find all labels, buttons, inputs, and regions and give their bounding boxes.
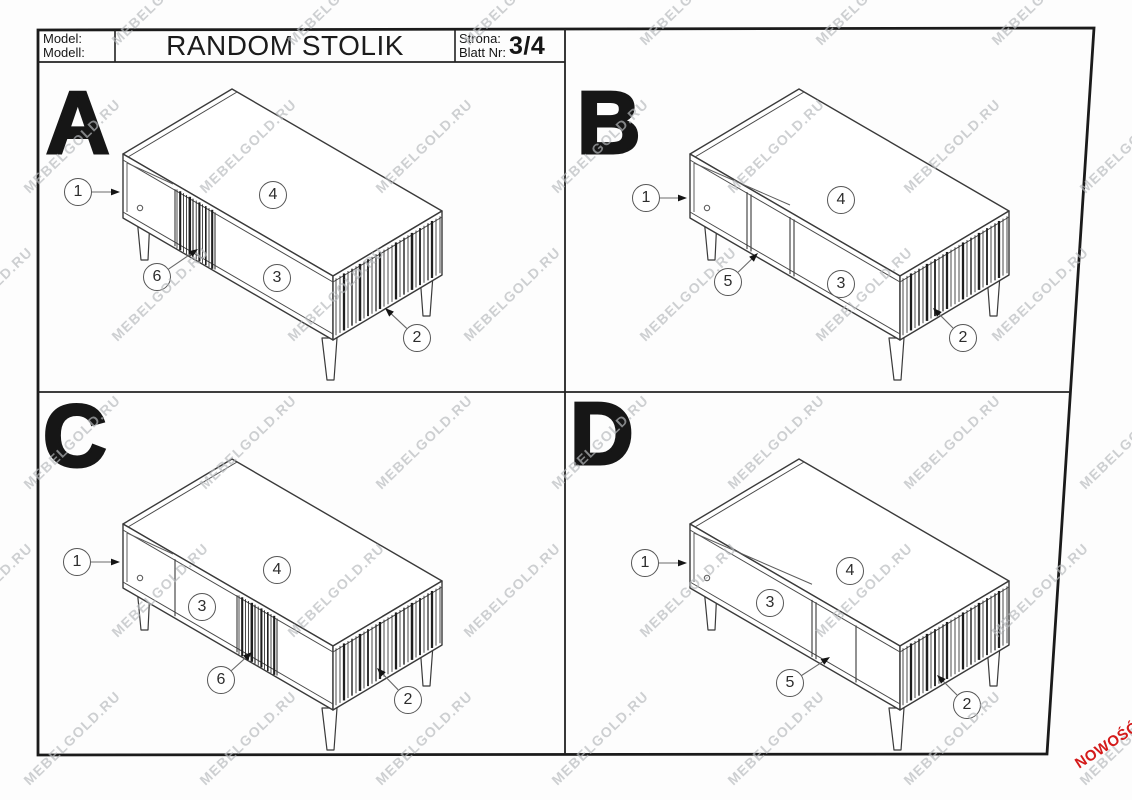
watermark-text: MEBELGOLD.RU — [460, 540, 563, 640]
watermark-text: MEBELGOLD.RU — [548, 688, 651, 788]
leader-arrow — [933, 308, 942, 317]
watermark-text: MEBELGOLD.RU — [1076, 392, 1132, 492]
watermark-text: MEBELGOLD.RU — [988, 0, 1091, 48]
watermark-text: MEBELGOLD.RU — [196, 96, 299, 196]
callout-part-5: 5 — [714, 268, 742, 296]
callout-part-6: 6 — [207, 666, 235, 694]
leader-arrow — [243, 652, 252, 661]
watermark-text: MEBELGOLD.RU — [1076, 96, 1132, 196]
callout-part-3: 3 — [827, 270, 855, 298]
page-label-pl: Strona: — [459, 32, 506, 46]
watermark-text: MEBELGOLD.RU — [724, 688, 827, 788]
variant-letter-b: B — [577, 79, 641, 167]
callout-part-3: 3 — [188, 593, 216, 621]
page-label-de: Blatt Nr: — [459, 46, 506, 60]
watermark-text: MEBELGOLD.RU — [196, 688, 299, 788]
watermark-text: MEBELGOLD.RU — [108, 244, 211, 344]
watermark-text: MEBELGOLD.RU — [0, 244, 36, 344]
watermark-text: MEBELGOLD.RU — [636, 0, 739, 48]
watermark-text: MEBELGOLD.RU — [196, 392, 299, 492]
watermark-text: MEBELGOLD.RU — [900, 392, 1003, 492]
watermark-text: MEBELGOLD.RU — [724, 392, 827, 492]
watermark-text: MEBELGOLD.RU — [372, 96, 475, 196]
leader-arrow — [111, 559, 120, 566]
watermark-text: MEBELGOLD.RU — [812, 0, 915, 48]
page-number-cell: Strona: Blatt Nr: 3/4 — [459, 31, 563, 61]
variant-letter-a: A — [46, 79, 110, 167]
leader-arrow — [937, 675, 946, 684]
watermark-text: MEBELGOLD.RU — [284, 540, 387, 640]
watermark-text: MEBELGOLD.RU — [900, 688, 1003, 788]
callout-part-1: 1 — [63, 548, 91, 576]
watermark-text: MEBELGOLD.RU — [724, 96, 827, 196]
leader-arrow — [111, 189, 120, 196]
callout-part-1: 1 — [632, 184, 660, 212]
watermark-text: MEBELGOLD.RU — [284, 244, 387, 344]
watermark-text: MEBELGOLD.RU — [20, 688, 123, 788]
watermark-text: MEBELGOLD.RU — [460, 244, 563, 344]
watermark-text: MEBELGOLD.RU — [812, 244, 915, 344]
table-drawing-c — [123, 459, 442, 750]
callout-part-2: 2 — [394, 686, 422, 714]
drawing-layer — [0, 0, 1132, 800]
callout-part-6: 6 — [143, 263, 171, 291]
callout-part-4: 4 — [263, 556, 291, 584]
callout-part-2: 2 — [949, 324, 977, 352]
variant-letter-d: D — [570, 390, 634, 478]
callout-part-1: 1 — [64, 178, 92, 206]
callout-part-4: 4 — [259, 181, 287, 209]
leader-arrow — [385, 308, 394, 317]
leader-arrow — [189, 249, 198, 257]
watermark-text: MEBELGOLD.RU — [108, 540, 211, 640]
watermark-layer: MEBELGOLD.RUMEBELGOLD.RUMEBELGOLD.RUMEBE… — [0, 0, 1132, 800]
watermark-text: MEBELGOLD.RU — [988, 540, 1091, 640]
leader-arrow — [821, 657, 830, 665]
leader-arrow — [377, 668, 386, 677]
table-drawing-a — [123, 89, 442, 380]
watermark-text: MEBELGOLD.RU — [372, 392, 475, 492]
callout-part-1: 1 — [631, 549, 659, 577]
callout-part-4: 4 — [827, 186, 855, 214]
callout-part-3: 3 — [263, 264, 291, 292]
new-badge: NOWOŚĆ — [1072, 719, 1132, 773]
instruction-sheet: Model: Modell: RANDOM STOLIK Strona: Bla… — [0, 0, 1132, 800]
watermark-text: MEBELGOLD.RU — [0, 540, 36, 640]
model-label-cell: Model: Modell: — [43, 32, 113, 60]
watermark-text: MEBELGOLD.RU — [988, 244, 1091, 344]
page-title: RANDOM STOLIK — [117, 30, 453, 62]
callout-part-3: 3 — [756, 589, 784, 617]
watermark-text: MEBELGOLD.RU — [812, 540, 915, 640]
watermark-text: MEBELGOLD.RU — [0, 0, 36, 48]
leader-arrow — [678, 560, 687, 567]
leader-arrow — [678, 195, 687, 202]
callout-part-2: 2 — [403, 324, 431, 352]
variant-letter-c: C — [43, 392, 107, 480]
model-label-pl: Model: — [43, 32, 113, 46]
callout-part-4: 4 — [836, 557, 864, 585]
leader-arrow — [749, 253, 758, 262]
watermark-text: MEBELGOLD.RU — [900, 96, 1003, 196]
page-number-value: 3/4 — [509, 32, 545, 61]
watermark-text: MEBELGOLD.RU — [372, 688, 475, 788]
callout-part-2: 2 — [953, 691, 981, 719]
callout-part-5: 5 — [776, 669, 804, 697]
model-label-de: Modell: — [43, 46, 113, 60]
